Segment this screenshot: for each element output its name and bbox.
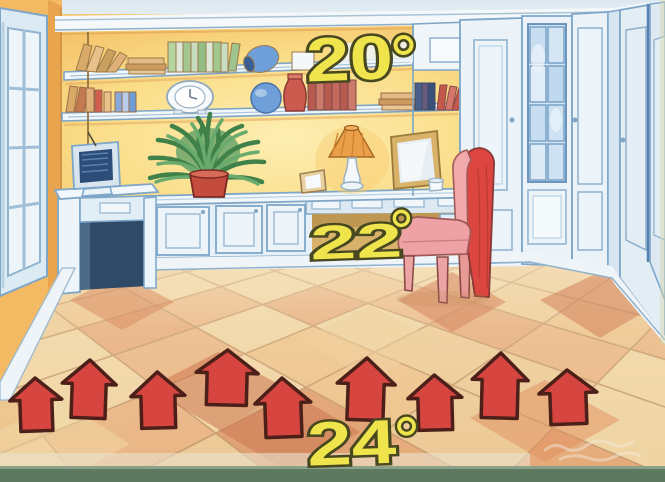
svg-text:20: 20	[305, 23, 394, 95]
svg-text:22: 22	[309, 214, 403, 270]
svg-text:24: 24	[306, 408, 398, 480]
